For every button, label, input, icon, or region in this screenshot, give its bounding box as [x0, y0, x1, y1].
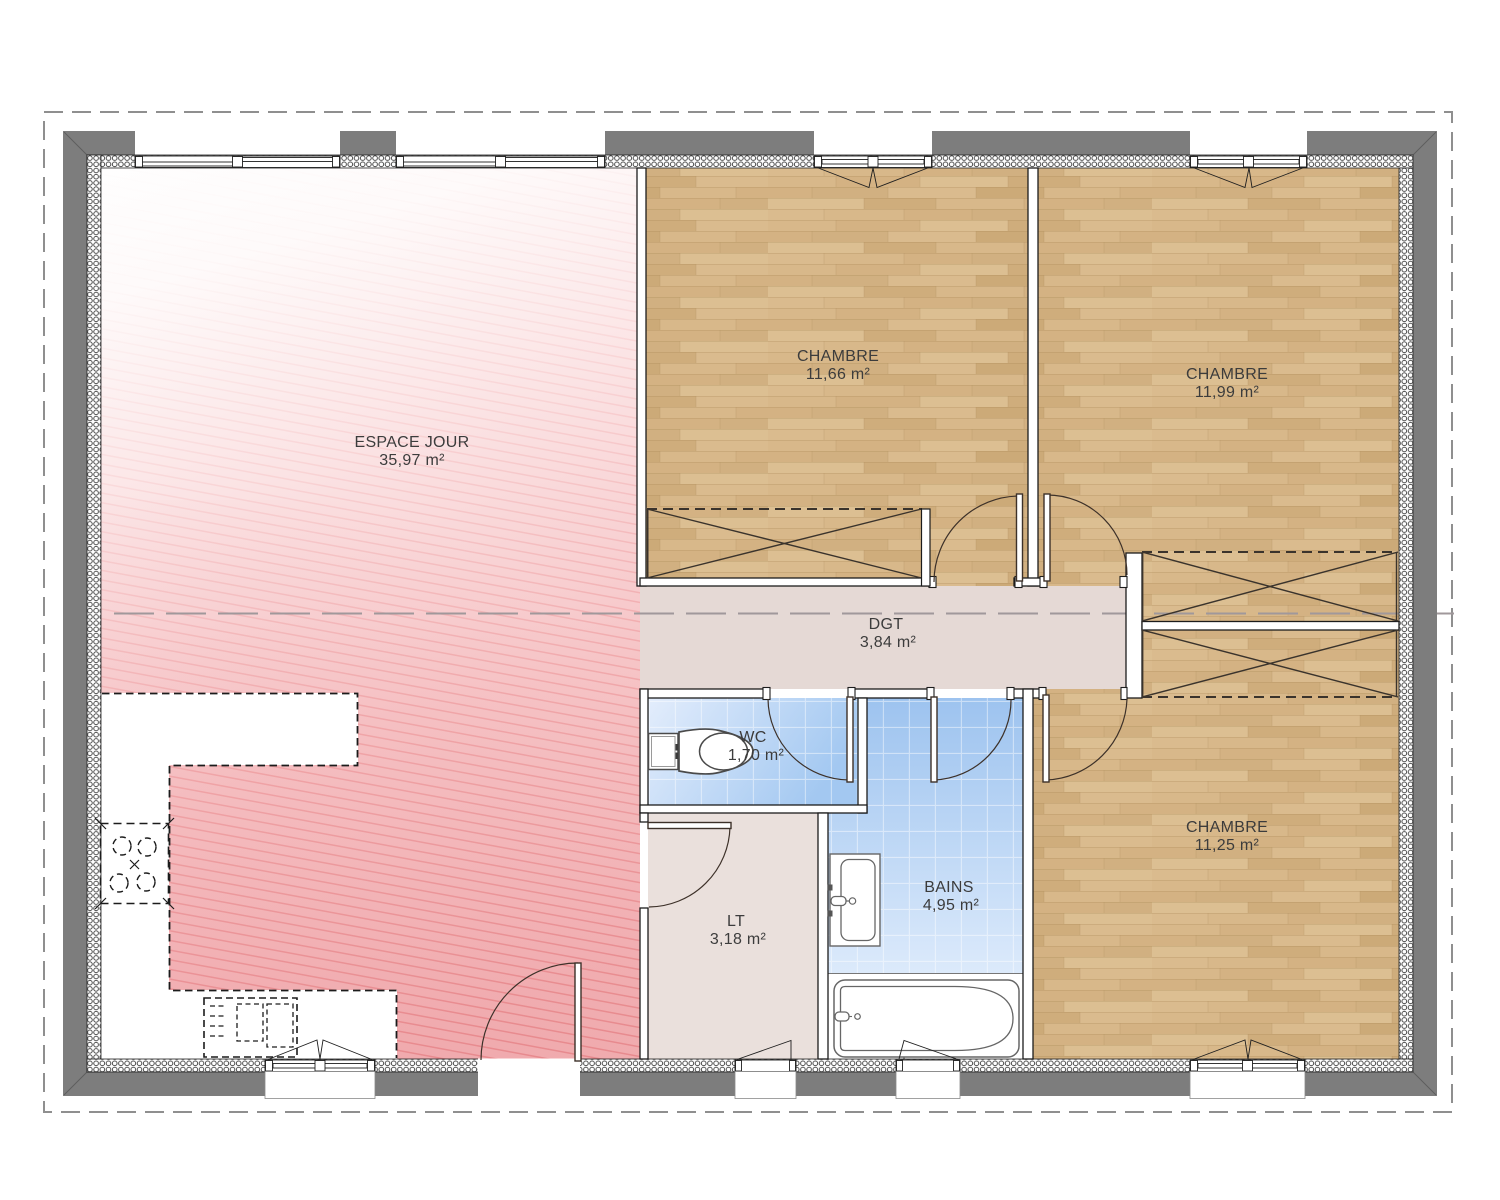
svg-text:11,99 m²: 11,99 m² — [1195, 384, 1260, 401]
svg-text:LT: LT — [727, 913, 745, 930]
svg-text:ESPACE JOUR: ESPACE JOUR — [354, 434, 469, 451]
svg-text:11,66 m²: 11,66 m² — [806, 366, 871, 383]
svg-text:4,95 m²: 4,95 m² — [923, 897, 980, 914]
svg-text:WC: WC — [739, 729, 766, 746]
svg-text:DGT: DGT — [869, 616, 904, 633]
svg-text:CHAMBRE: CHAMBRE — [1186, 819, 1268, 836]
svg-text:1,70 m²: 1,70 m² — [728, 747, 785, 764]
svg-text:3,84 m²: 3,84 m² — [860, 634, 917, 651]
svg-text:BAINS: BAINS — [924, 879, 974, 896]
svg-text:CHAMBRE: CHAMBRE — [1186, 366, 1268, 383]
svg-text:3,18 m²: 3,18 m² — [710, 931, 767, 948]
svg-text:35,97 m²: 35,97 m² — [379, 452, 445, 469]
svg-text:CHAMBRE: CHAMBRE — [797, 348, 879, 365]
svg-text:11,25 m²: 11,25 m² — [1195, 837, 1260, 854]
